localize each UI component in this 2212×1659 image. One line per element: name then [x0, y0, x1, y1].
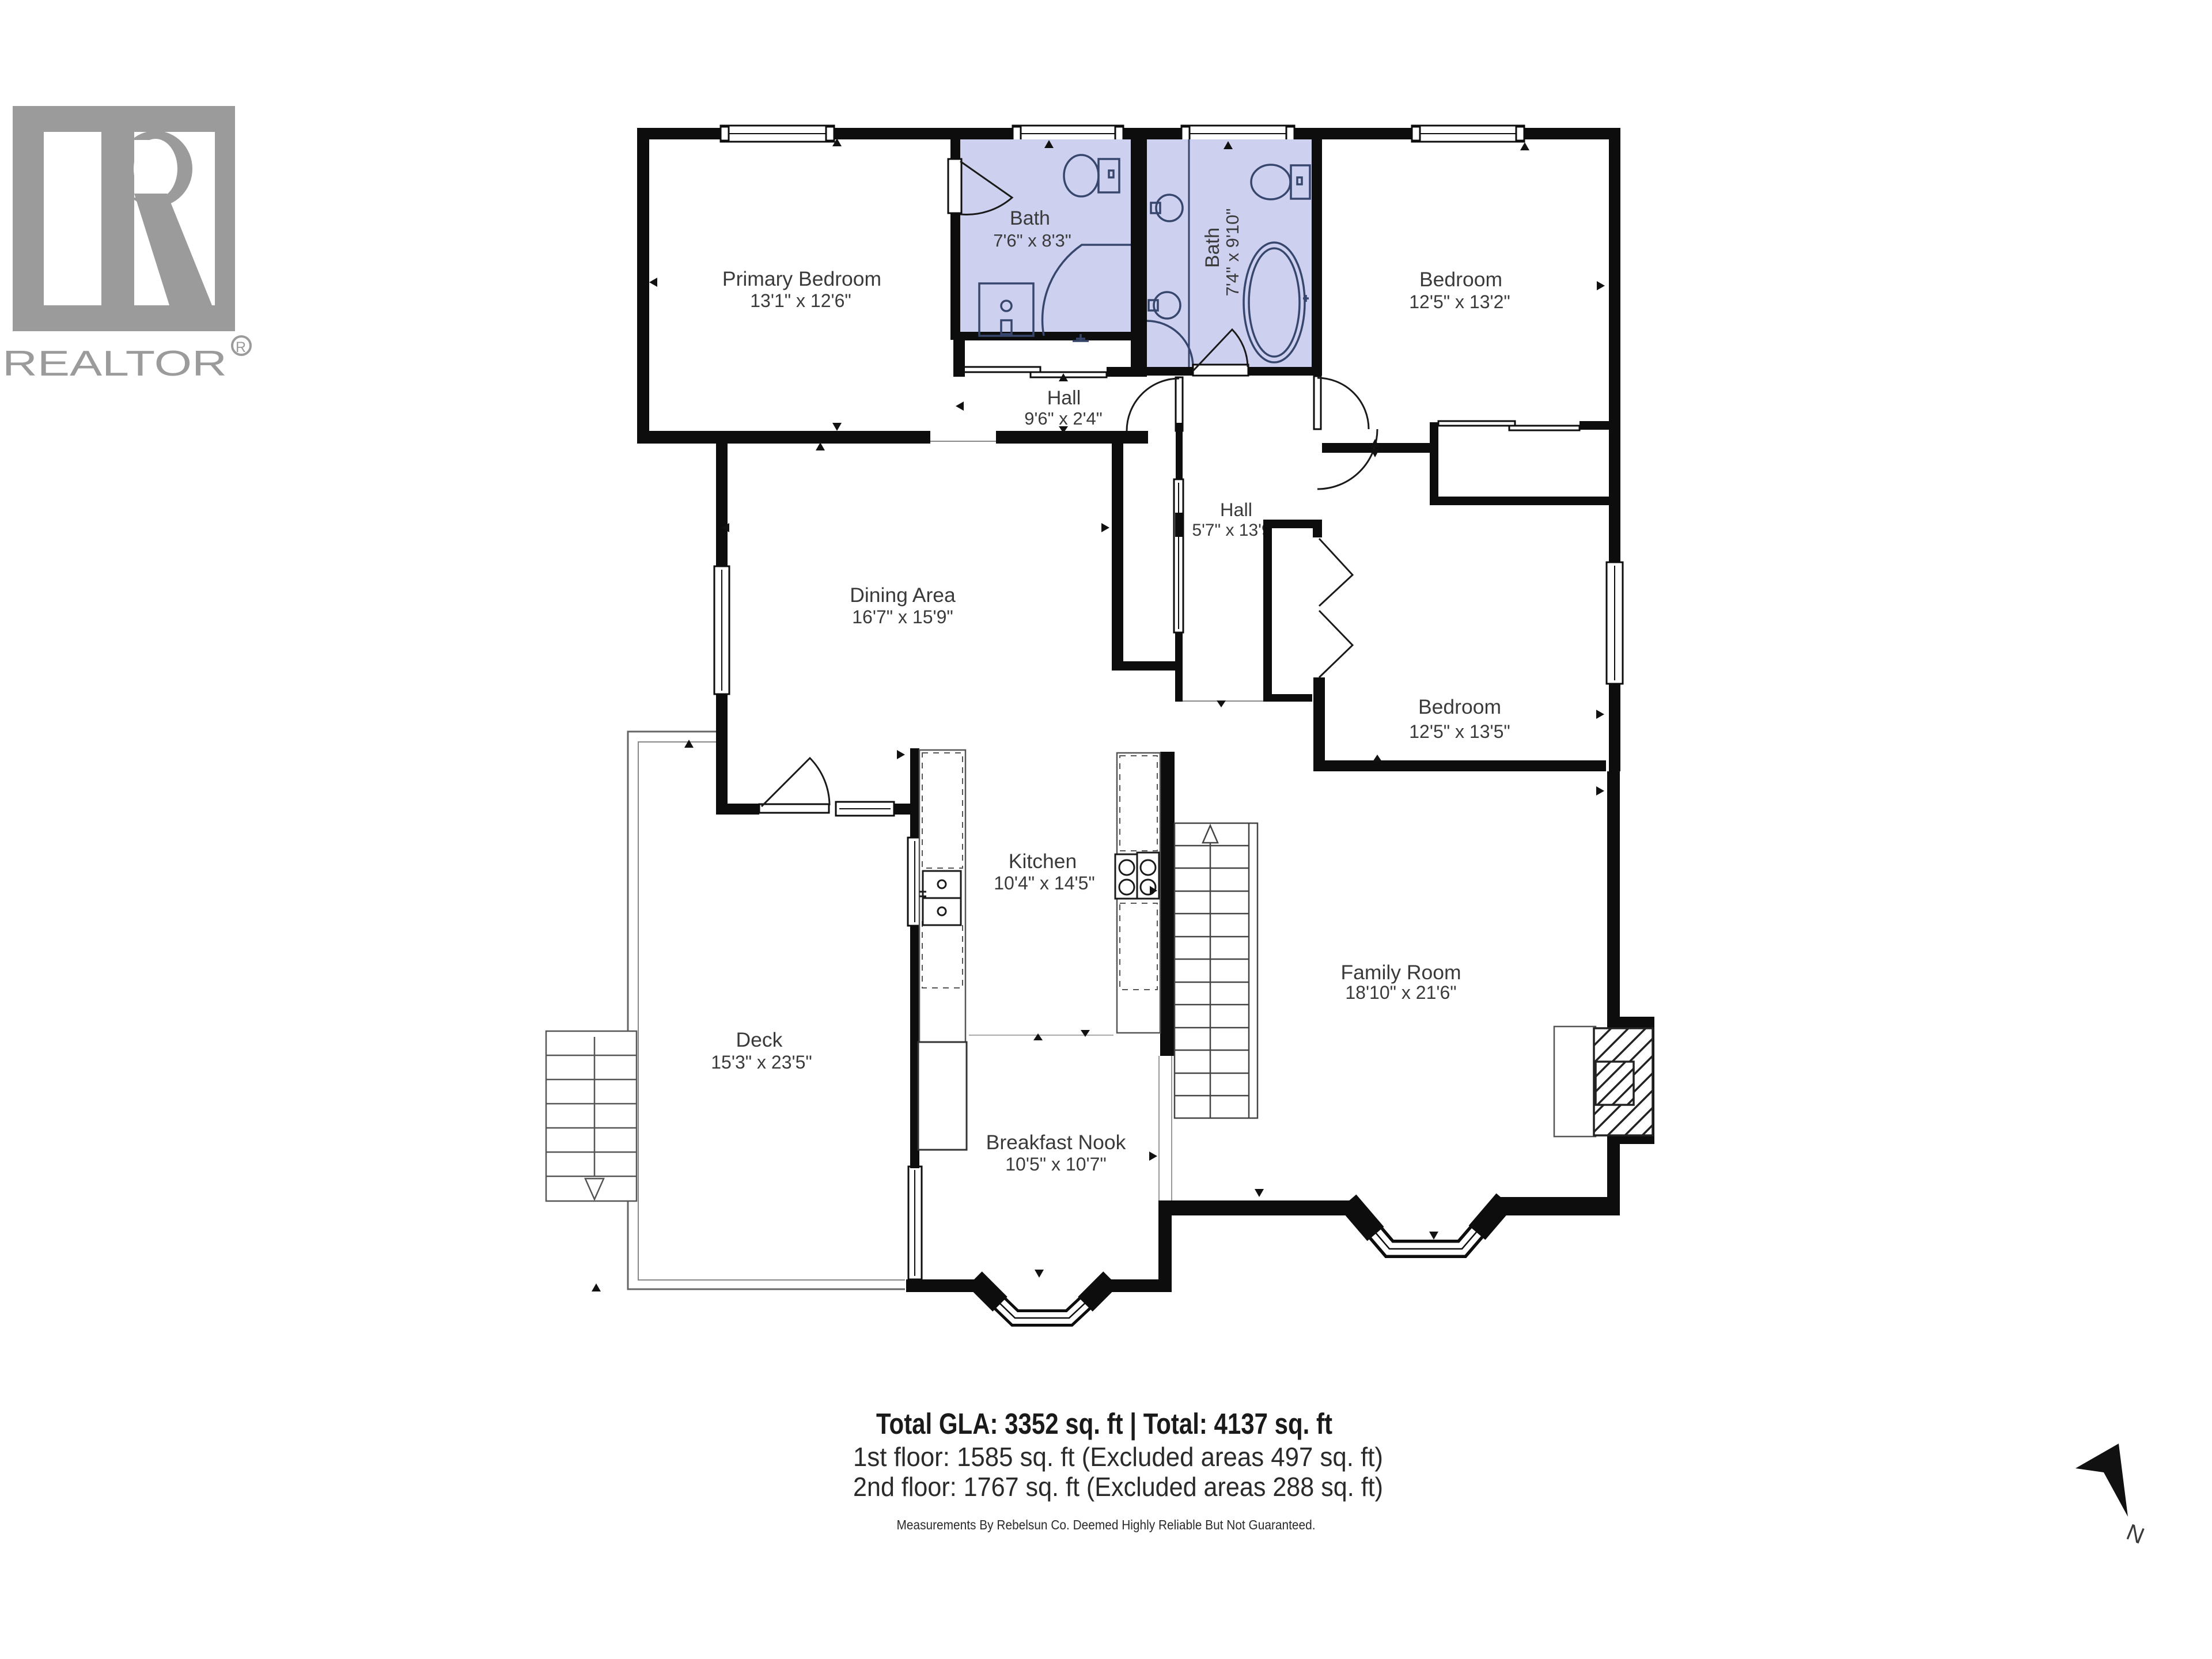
svg-text:Family Room: Family Room: [1340, 961, 1461, 984]
svg-text:Dining Area: Dining Area: [850, 584, 956, 607]
svg-text:Primary Bedroom: Primary Bedroom: [722, 267, 881, 290]
svg-text:Bedroom: Bedroom: [1419, 268, 1502, 291]
svg-text:R: R: [236, 339, 246, 355]
svg-text:10'5" x 10'7": 10'5" x 10'7": [1005, 1154, 1107, 1175]
svg-text:REALTOR: REALTOR: [2, 344, 227, 384]
svg-text:1st floor: 1585 sq. ft (Exclud: 1st floor: 1585 sq. ft (Excluded areas 4…: [853, 1442, 1383, 1472]
svg-text:9'6" x 2'4": 9'6" x 2'4": [1024, 408, 1103, 429]
svg-text:Bath: Bath: [1010, 207, 1050, 229]
svg-text:Hall: Hall: [1047, 387, 1081, 409]
svg-text:Bath: Bath: [1202, 228, 1224, 268]
svg-text:10'4" x 14'5": 10'4" x 14'5": [994, 873, 1095, 893]
svg-text:13'1" x 12'6": 13'1" x 12'6": [750, 290, 851, 311]
svg-text:Bedroom: Bedroom: [1418, 695, 1501, 718]
svg-text:18'10" x 21'6": 18'10" x 21'6": [1345, 982, 1456, 1003]
svg-text:5'7" x 13'9: 5'7" x 13'9: [1192, 521, 1271, 540]
svg-text:12'5" x 13'2": 12'5" x 13'2": [1409, 291, 1510, 312]
svg-text:Deck: Deck: [736, 1028, 783, 1051]
svg-text:Measurements By Rebelsun Co. D: Measurements By Rebelsun Co. Deemed High…: [897, 1517, 1316, 1532]
svg-text:2nd floor: 1767 sq. ft (Exclud: 2nd floor: 1767 sq. ft (Excluded areas 2…: [853, 1472, 1383, 1502]
svg-text:7'6" x 8'3": 7'6" x 8'3": [993, 230, 1071, 251]
svg-text:15'3" x 23'5": 15'3" x 23'5": [711, 1052, 812, 1073]
svg-text:7'4" x 9'10": 7'4" x 9'10": [1222, 209, 1243, 297]
svg-text:16'7" x 15'9": 16'7" x 15'9": [852, 607, 953, 627]
svg-text:Kitchen: Kitchen: [1009, 850, 1077, 873]
svg-text:12'5" x 13'5": 12'5" x 13'5": [1409, 721, 1510, 742]
svg-text:Breakfast Nook: Breakfast Nook: [986, 1131, 1126, 1154]
svg-text:Total GLA: 3352 sq. ft | Total: Total GLA: 3352 sq. ft | Total: 4137 sq.…: [876, 1407, 1332, 1441]
svg-text:Hall: Hall: [1220, 499, 1252, 520]
